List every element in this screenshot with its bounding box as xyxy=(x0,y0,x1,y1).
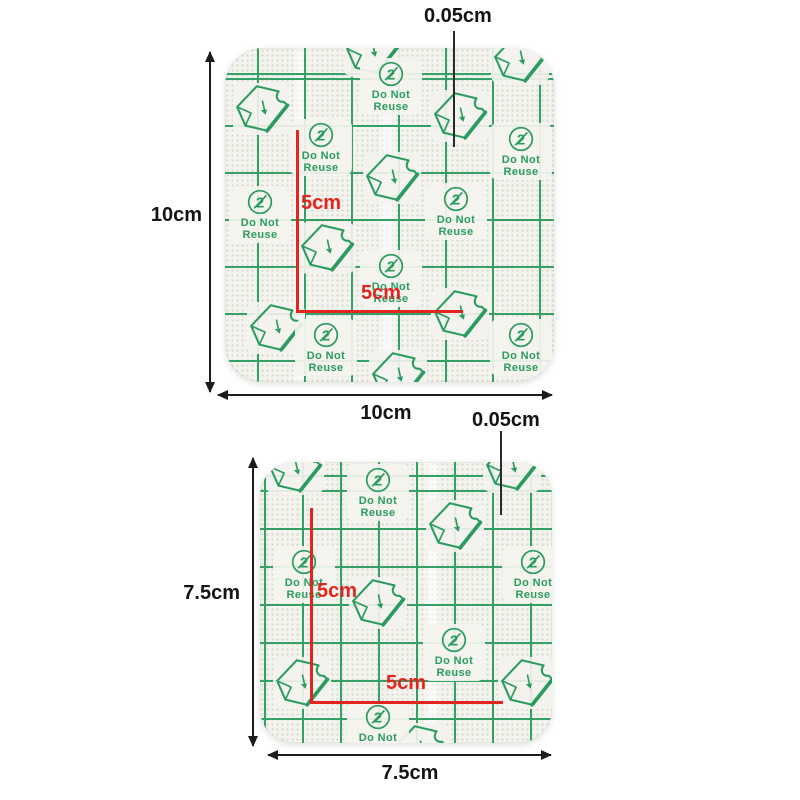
do-not-reuse-text: Reuse xyxy=(490,362,552,374)
do-not-reuse-icon xyxy=(364,466,392,494)
do-not-reuse-mark: Do Not Reuse xyxy=(502,546,552,603)
do-not-reuse-icon xyxy=(507,321,535,349)
do-not-reuse-icon xyxy=(364,703,392,731)
do-not-reuse-mark: Do Not Reuse xyxy=(360,58,422,115)
height-dimension-arrow-bottom-patch xyxy=(252,458,254,746)
peel-flag-icon xyxy=(431,90,489,142)
film-dressing-7-5cm: Do Not Reuse Do Not Reuse Do Not Reuse D… xyxy=(260,462,552,743)
do-not-reuse-text: Reuse xyxy=(502,589,552,601)
do-not-reuse-mark: Do Not Reuse xyxy=(347,464,409,521)
do-not-reuse-text: Do Not xyxy=(360,89,422,101)
do-not-reuse-icon xyxy=(519,548,547,576)
inner-horizontal-measure-label: 5cm xyxy=(386,672,426,695)
width-dimension-arrow-top-patch xyxy=(218,394,552,396)
do-not-reuse-mark: Do Not Reuse xyxy=(229,186,291,243)
peel-flag-icon xyxy=(491,48,549,85)
do-not-reuse-icon xyxy=(290,548,318,576)
do-not-reuse-icon xyxy=(246,188,274,216)
peel-flag-icon xyxy=(233,83,291,135)
do-not-reuse-text: Do Not xyxy=(425,214,487,226)
do-not-reuse-text: Reuse xyxy=(347,507,409,519)
inner-vertical-measure-line xyxy=(296,130,299,311)
do-not-reuse-text: Do Not xyxy=(347,495,409,507)
peel-flag-icon xyxy=(266,462,324,495)
do-not-reuse-mark: Do Not Reuse xyxy=(290,119,352,176)
inner-vertical-measure-label: 5cm xyxy=(317,580,357,603)
inner-horizontal-measure-line xyxy=(296,310,463,313)
do-not-reuse-icon xyxy=(377,252,405,280)
peel-flag-icon xyxy=(363,152,421,204)
thickness-pointer-line-bottom-patch xyxy=(500,431,502,515)
thickness-label-top-patch: 0.05cm xyxy=(424,5,514,28)
inner-horizontal-measure-line xyxy=(310,701,503,704)
peel-flag-icon xyxy=(369,350,427,382)
width-dimension-label-top-patch: 10cm xyxy=(350,402,422,425)
do-not-reuse-icon xyxy=(377,60,405,88)
do-not-reuse-mark: Do Not Reuse xyxy=(425,183,487,240)
do-not-reuse-text: Reuse xyxy=(229,229,291,241)
width-dimension-arrow-bottom-patch xyxy=(268,754,551,756)
do-not-reuse-text: Do Not xyxy=(490,154,552,166)
do-not-reuse-text: Do Not xyxy=(229,217,291,229)
do-not-reuse-icon xyxy=(440,626,468,654)
do-not-reuse-mark: Do Not Reuse xyxy=(295,319,357,376)
do-not-reuse-text: Reuse xyxy=(295,362,357,374)
do-not-reuse-text: Reuse xyxy=(490,166,552,178)
peel-flag-icon xyxy=(431,288,489,340)
peel-flag-icon xyxy=(498,657,552,709)
do-not-reuse-text: Do Not xyxy=(295,350,357,362)
width-dimension-label-bottom-patch: 7.5cm xyxy=(366,762,454,785)
inner-vertical-measure-line xyxy=(310,508,313,702)
thickness-pointer-line-top-patch xyxy=(453,31,455,147)
do-not-reuse-text: Do Not xyxy=(347,732,409,743)
peel-flag-icon xyxy=(426,500,484,552)
do-not-reuse-icon xyxy=(442,185,470,213)
do-not-reuse-text: Do Not xyxy=(423,655,485,667)
do-not-reuse-mark: Do Not Reuse xyxy=(423,624,485,681)
do-not-reuse-icon xyxy=(312,321,340,349)
do-not-reuse-mark: Do Not Reuse xyxy=(490,123,552,180)
peel-flag-icon xyxy=(349,577,407,629)
inner-horizontal-measure-label: 5cm xyxy=(361,282,401,305)
do-not-reuse-text: Reuse xyxy=(360,101,422,113)
do-not-reuse-mark: Do Not Reuse xyxy=(490,319,552,376)
height-dimension-label-bottom-patch: 7.5cm xyxy=(166,582,240,605)
film-dressing-10cm: Do Not Reuse Do Not Reuse Do Not Reuse D… xyxy=(225,48,554,382)
do-not-reuse-icon xyxy=(307,121,335,149)
do-not-reuse-text: Reuse xyxy=(425,226,487,238)
peel-flag-icon xyxy=(483,462,541,493)
do-not-reuse-text: Reuse xyxy=(423,667,485,679)
do-not-reuse-text: Do Not xyxy=(290,150,352,162)
thickness-label-bottom-patch: 0.05cm xyxy=(472,409,562,432)
height-dimension-label-top-patch: 10cm xyxy=(138,204,202,227)
peel-flag-icon xyxy=(298,222,356,274)
product-dimension-image: 2 Do Not Reuse xyxy=(0,0,800,800)
do-not-reuse-text: Do Not xyxy=(502,577,552,589)
height-dimension-arrow-top-patch xyxy=(209,52,211,392)
do-not-reuse-icon xyxy=(507,125,535,153)
do-not-reuse-text: Reuse xyxy=(290,162,352,174)
do-not-reuse-text: Do Not xyxy=(490,350,552,362)
do-not-reuse-mark: Do Not Reuse xyxy=(347,701,409,743)
inner-vertical-measure-label: 5cm xyxy=(301,192,341,215)
